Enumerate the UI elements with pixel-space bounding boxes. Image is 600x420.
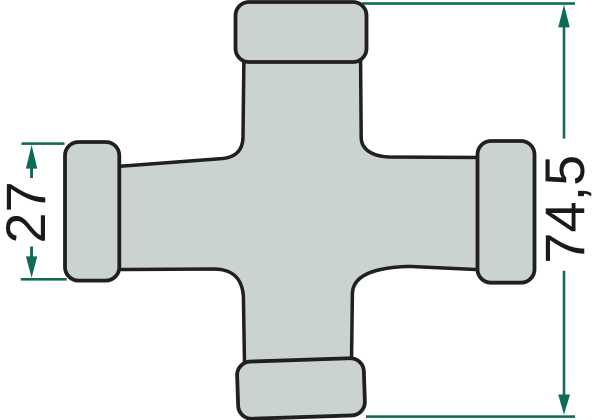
svg-text:27: 27 bbox=[0, 181, 57, 243]
svg-text:74,5: 74,5 bbox=[533, 155, 596, 264]
